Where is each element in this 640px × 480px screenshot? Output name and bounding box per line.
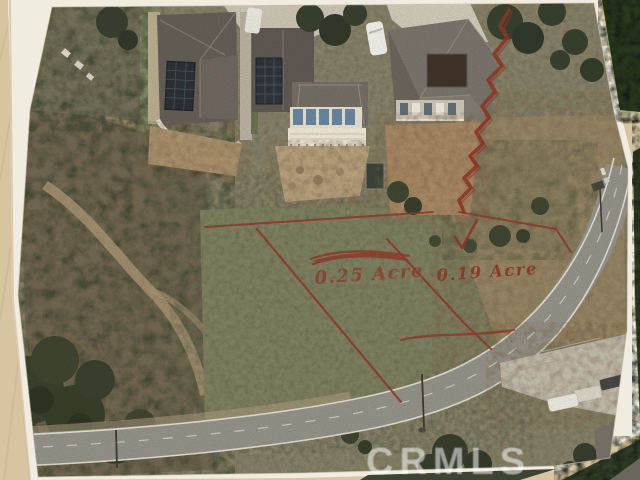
crmls-watermark: CRMLS bbox=[366, 441, 531, 480]
listing-photo-frame: 0.25 Acre 0.19 Acre CRMLS bbox=[0, 0, 640, 480]
aerial-lot-photo: 0.25 Acre 0.19 Acre CRMLS bbox=[0, 0, 640, 480]
aerial-photo-content: 0.25 Acre 0.19 Acre bbox=[0, 0, 640, 480]
